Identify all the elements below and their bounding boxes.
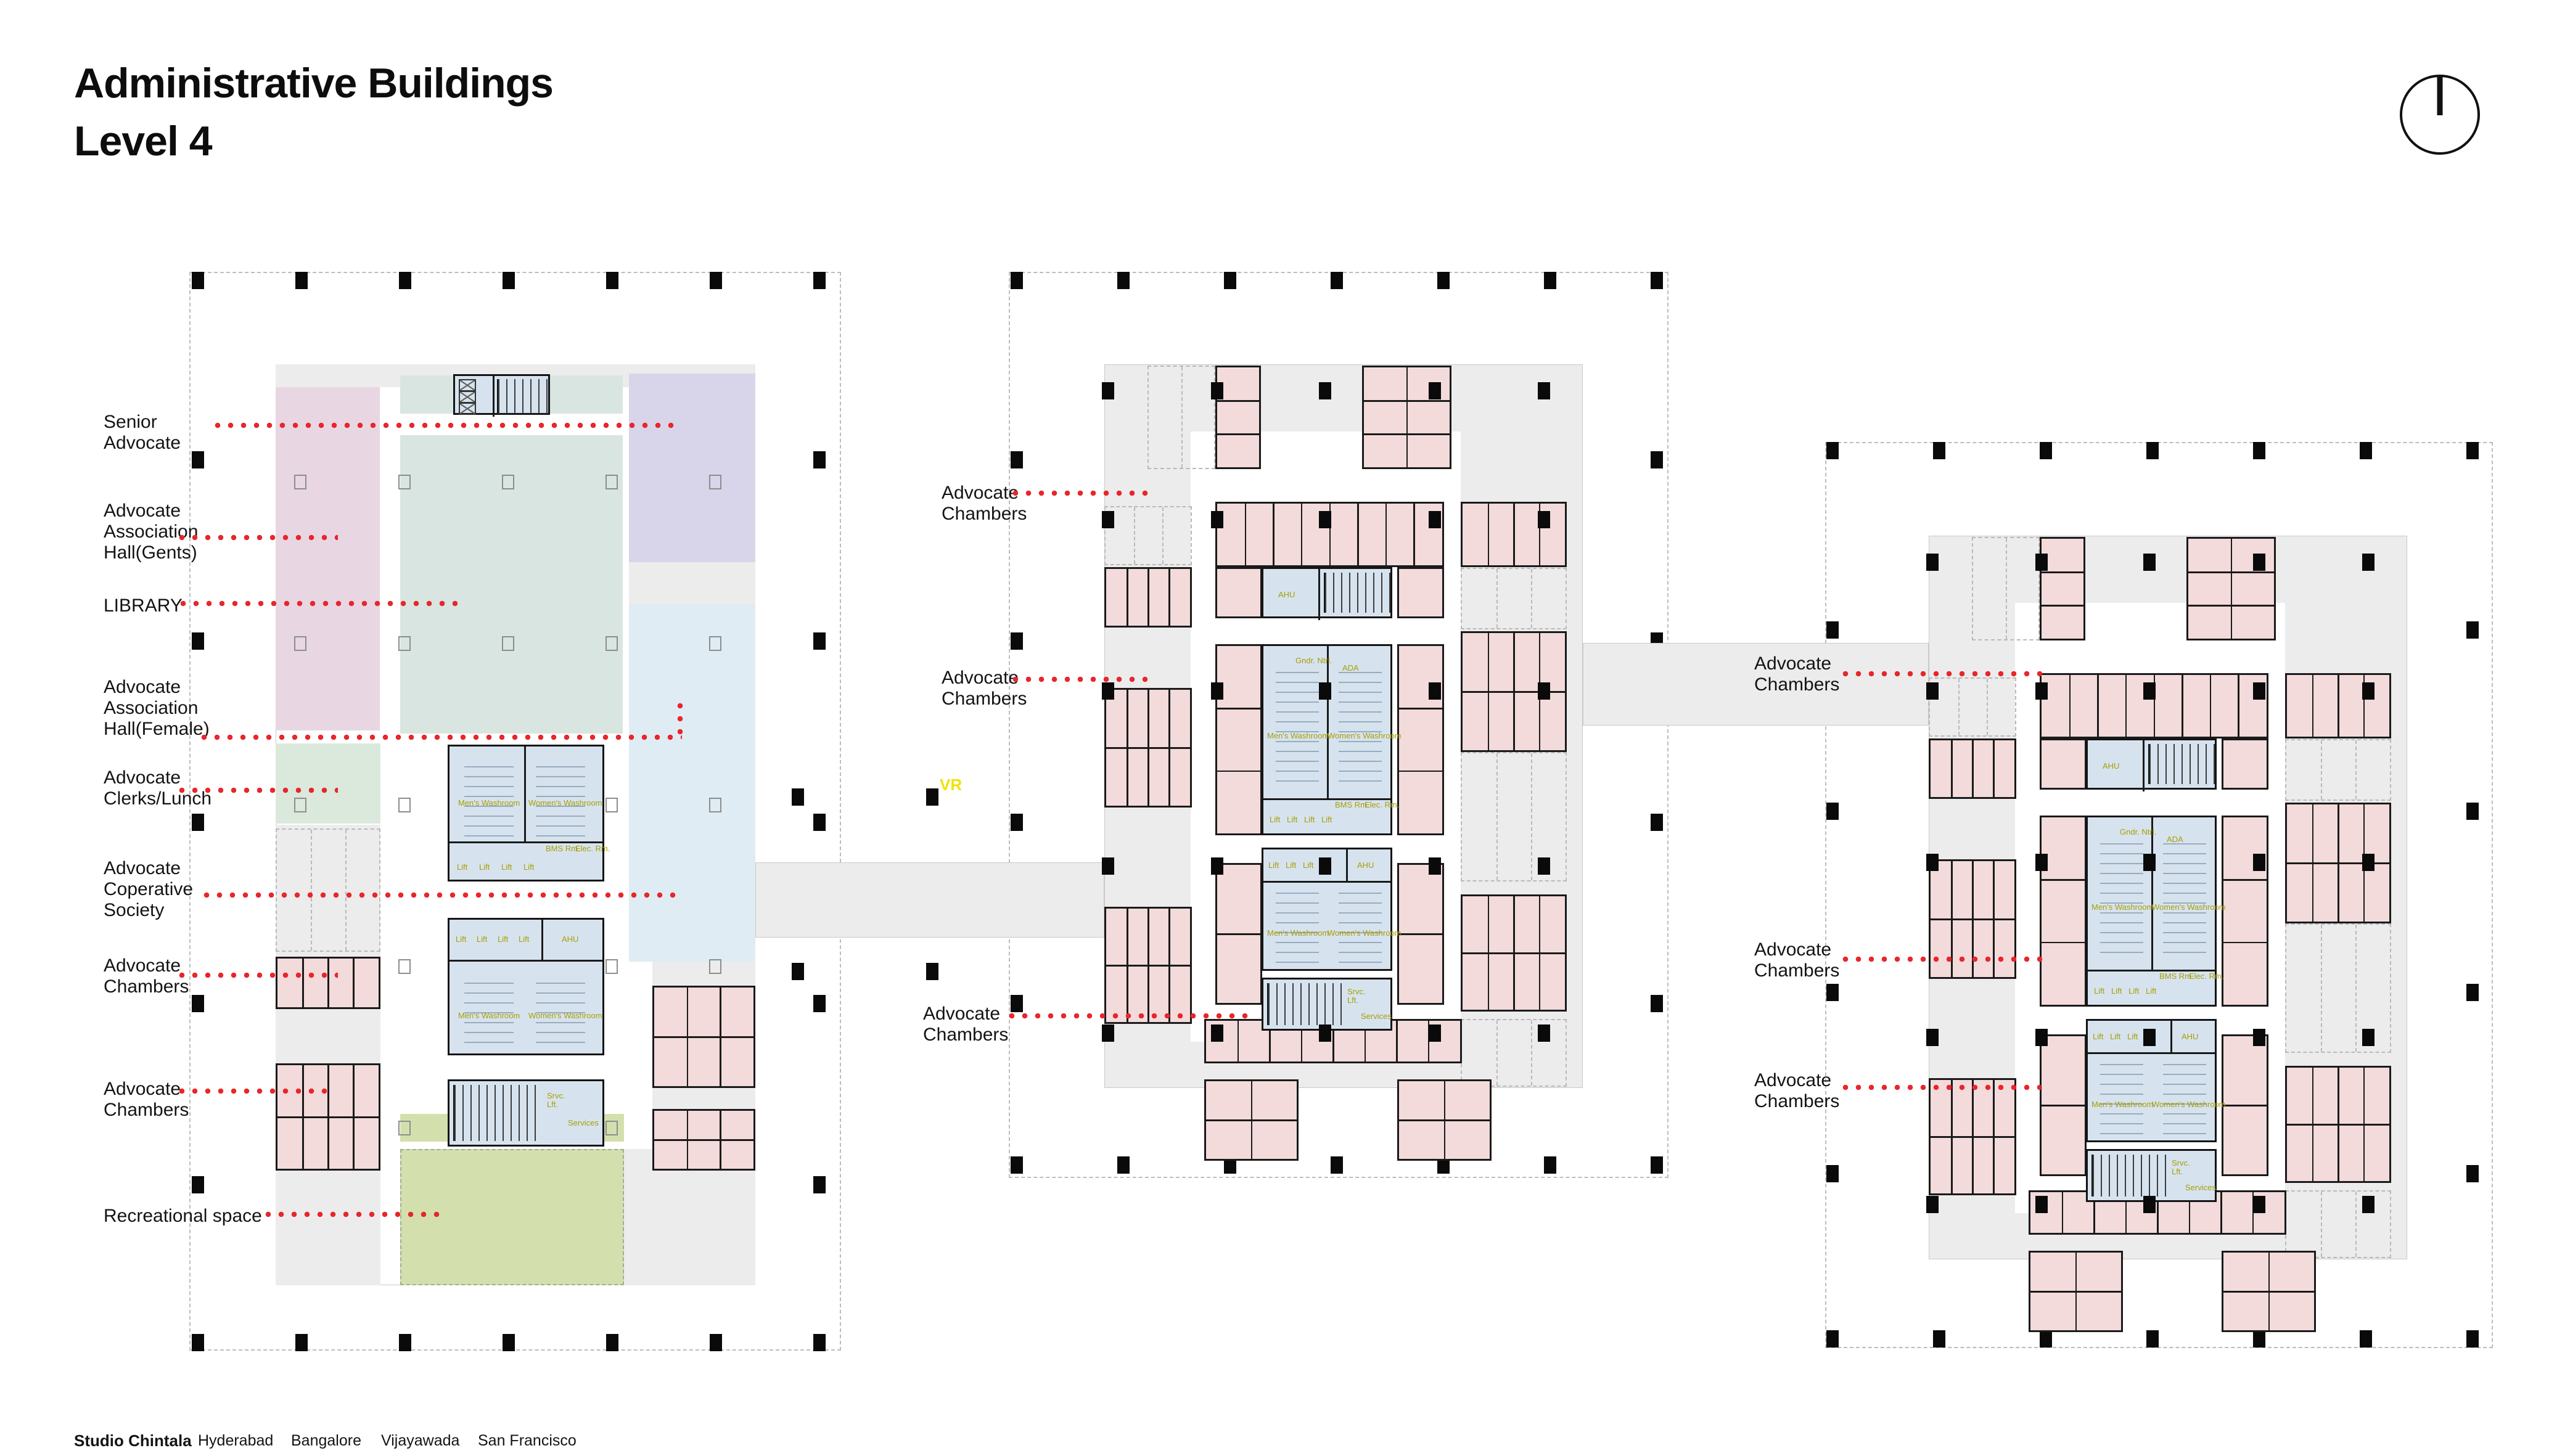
column-marker [1319, 857, 1331, 875]
parking-bay-line [311, 830, 312, 951]
core-divider [1346, 849, 1348, 881]
column-outline-marker [709, 798, 721, 812]
grid-line [2062, 1192, 2064, 1233]
parking-bay-line [2321, 925, 2322, 1052]
column-marker [606, 272, 618, 289]
core-room-label: AHU [1278, 591, 1295, 599]
column-outline-marker [398, 636, 411, 651]
column-marker [1319, 511, 1331, 528]
column-marker [1011, 451, 1023, 468]
stall-lines [464, 975, 514, 1043]
parking-bays [2285, 923, 2391, 1053]
parking-bay-line [1958, 679, 1960, 735]
core-divider [2088, 1052, 2215, 1054]
core-room-label: Men's Washroom [458, 1012, 520, 1020]
grid-line [2097, 675, 2099, 737]
stair-hatch [2091, 1155, 2167, 1196]
plan-label-line: Chambers [1754, 1091, 1839, 1112]
column-marker [813, 1334, 826, 1351]
leader-library [180, 600, 458, 607]
column-outline-marker [502, 475, 514, 489]
plan-label-line: Society [104, 900, 193, 921]
plan-label-recreational-space: Recreational space [104, 1206, 262, 1227]
core-room-label: AHU [562, 935, 578, 944]
column-marker [2146, 1330, 2159, 1348]
advocate-chambers-grid [1215, 366, 1261, 469]
grid-line [2338, 675, 2339, 737]
right-building-core-ahu-stair: AHU [2086, 738, 2217, 790]
column-marker [1651, 1156, 1663, 1174]
core-room-label: Lift [2093, 1033, 2103, 1041]
column-marker [503, 1334, 515, 1351]
parking-bay-line [2321, 740, 2322, 800]
core-room-label: Services [2185, 1184, 2216, 1192]
grid-line [2223, 942, 2267, 944]
parking-bay-line [1181, 367, 1183, 468]
plan-label-advocate-chambers-mid-3: AdvocateChambers [923, 1004, 1008, 1045]
advocate-chambers-grid [2285, 673, 2391, 738]
column-marker [1651, 814, 1663, 831]
column-marker [192, 1334, 204, 1351]
core-room-label: Lift [457, 863, 467, 872]
advocate-chambers-grid [1929, 1078, 2016, 1195]
stair-hatch [1267, 983, 1342, 1025]
grid-line [1413, 504, 1415, 565]
grid-line [1217, 400, 1259, 402]
column-marker [1102, 1025, 1114, 1042]
vr-marker: VR [940, 775, 962, 795]
column-outline-marker [605, 1121, 618, 1135]
column-outline-marker [605, 636, 618, 651]
column-marker [1011, 995, 1023, 1012]
advocate-chambers-grid [1397, 644, 1444, 835]
column-marker [2362, 554, 2375, 571]
column-marker [1429, 682, 1441, 700]
plan-label-line: Chambers [104, 976, 189, 997]
advocate-chambers-grid [2222, 816, 2268, 1007]
parking-bays [1929, 677, 2016, 737]
parking-bay-line [1134, 507, 1135, 564]
core-room-label: Lift [479, 863, 490, 872]
core-room-label: Srvc. [547, 1092, 565, 1100]
parking-bay-line [1496, 753, 1498, 880]
column-marker [1651, 272, 1663, 289]
grid-line [2223, 1105, 2267, 1106]
advocate-chambers-grid [1929, 738, 2016, 799]
column-marker [1011, 632, 1023, 650]
core-divider [524, 746, 526, 842]
core-room-label: Services [568, 1119, 599, 1127]
column-marker [1538, 1025, 1550, 1042]
core-room-label: Lift [1304, 816, 1315, 824]
left-slab-area [276, 1171, 380, 1285]
grid-line [1301, 504, 1303, 565]
column-marker [2253, 854, 2265, 871]
parking-bay-line [1496, 1020, 1498, 1086]
plan-label-association-hall-female: AdvocateAssociationHall(Female) [104, 677, 210, 740]
stair-hatch [1324, 573, 1390, 613]
core-room-label: Lft. [2172, 1168, 2183, 1176]
plan-label-advocate-chambers-mid-2: AdvocateChambers [942, 668, 1027, 710]
plan-label-line: LIBRARY [104, 595, 183, 616]
plan-label-line: Advocate [104, 677, 210, 698]
plan-label-line: Senior [104, 412, 181, 433]
grid-line [1106, 747, 1190, 749]
grid-line [2210, 675, 2212, 737]
grid-line [2069, 675, 2071, 737]
advocate-chambers-grid [2040, 816, 2087, 1007]
advocate-chambers-grid [652, 986, 755, 1088]
core-divider [2170, 1021, 2172, 1053]
column-marker [1102, 857, 1114, 875]
plan-label-line: Advocate [1754, 1070, 1839, 1091]
core-room-label: Services [1361, 1012, 1392, 1021]
column-marker [2253, 554, 2265, 571]
plan-label-library: LIBRARY [104, 595, 183, 616]
leader-vtick-association-hall-female [677, 703, 683, 735]
core-room-label: Lift [2111, 987, 2122, 996]
column-marker [1102, 382, 1114, 399]
grid-line [2188, 571, 2274, 573]
plan-label-line: Coperative [104, 879, 193, 900]
advocate-chambers-grid [2029, 1251, 2123, 1332]
plan-label-line: Advocate [104, 433, 181, 454]
plan-label-line: Advocate [104, 767, 211, 788]
grid-line [1931, 1136, 2014, 1138]
zone-senior-advocate [629, 374, 755, 562]
plan-label-line: Chambers [942, 689, 1027, 710]
core-room-label: Gndr. Ntrl. [2120, 828, 2156, 836]
advocate-chambers-grid [1215, 567, 1262, 618]
column-marker [2253, 442, 2265, 459]
core-room-label: Lift [498, 935, 508, 944]
grid-line [1488, 504, 1490, 565]
column-marker [2040, 442, 2052, 459]
leader-advocate-chambers-left-2 [179, 1088, 327, 1094]
column-marker [2362, 682, 2375, 700]
leader-advocate-chambers-right-2 [1842, 956, 2042, 962]
column-marker [2362, 1029, 2375, 1046]
column-marker [2466, 442, 2479, 459]
shaft-x-icon [459, 379, 476, 391]
parking-bay-line [1531, 753, 1532, 880]
column-marker [1926, 554, 1939, 571]
core-divider [449, 841, 602, 843]
column-outline-marker [398, 959, 411, 974]
column-outline-marker [294, 475, 306, 489]
column-marker [192, 451, 204, 468]
column-marker [2466, 803, 2479, 820]
advocate-chambers-grid [1104, 907, 1192, 1024]
parking-bay-line [2355, 925, 2357, 1052]
core-room-label: Lift [2110, 1033, 2120, 1041]
grid-line [1238, 1021, 1239, 1061]
plan-label-line: Association [104, 698, 210, 719]
column-outline-marker [398, 1121, 411, 1135]
column-marker [1826, 1330, 1839, 1348]
column-outline-marker [605, 959, 618, 974]
grid-line [2287, 1124, 2389, 1126]
plan-label-advocate-chambers-right-2: AdvocateChambers [1754, 939, 1839, 981]
leader-advocate-chambers-mid-3 [1009, 1013, 1252, 1019]
column-marker [2362, 1196, 2375, 1213]
plan-label-line: Advocate [104, 955, 189, 976]
parking-bay-line [345, 830, 347, 951]
plan-label-association-hall-gents: AdvocateAssociationHall(Gents) [104, 501, 198, 563]
left-core-washrooms-upper: Men's WashroomWomen's WashroomBMS Rm.Ele… [448, 745, 604, 881]
column-marker [192, 632, 204, 650]
column-marker [1211, 857, 1223, 875]
plan-label-line: Advocate [1754, 653, 1839, 674]
parking-bay-line [2006, 538, 2007, 639]
grid-line [1463, 952, 1565, 954]
column-marker [1102, 511, 1114, 528]
grid-line [2223, 879, 2267, 881]
plan-label-line: Hall(Female) [104, 719, 210, 740]
stall-lines [2163, 842, 2206, 953]
grid-line [654, 1139, 753, 1141]
plan-label-line: Chambers [1754, 960, 1839, 981]
grid-line [1513, 504, 1515, 565]
left-slab-area [276, 1009, 380, 1063]
parking-bay-line [1987, 679, 1988, 735]
column-marker [1933, 442, 1945, 459]
plan-label-advocate-chambers-right-3: AdvocateChambers [1754, 1070, 1839, 1112]
column-marker [926, 788, 938, 806]
grid-line [2220, 1192, 2222, 1233]
column-marker [813, 995, 826, 1012]
grid-line [1106, 965, 1190, 967]
footer-city-vijayawada: Vijayawada [381, 1432, 459, 1450]
leader-advocate-chambers-mid-2 [1012, 676, 1154, 682]
advocate-chambers-grid [1461, 502, 1567, 567]
plan-label-advocate-chambers-mid-1: AdvocateChambers [942, 483, 1027, 525]
advocate-chambers-grid [1461, 894, 1567, 1012]
grid-line [1127, 569, 1128, 626]
shaft-x-icon [459, 391, 476, 403]
column-marker [1429, 1025, 1441, 1042]
grid-line [302, 959, 304, 1007]
grid-line [2042, 942, 2085, 944]
column-marker [792, 963, 804, 980]
grid-line [2231, 539, 2233, 639]
core-room-label: Lift [1303, 861, 1313, 870]
core-room-label: Lift [501, 863, 512, 872]
stall-lines [1276, 671, 1319, 782]
middle-building-core-ahu-stair: AHU [1262, 567, 1392, 618]
zone-advocate-clerks-lunch [276, 743, 380, 824]
column-marker [2360, 1330, 2372, 1348]
core-room-label: Lift [2146, 987, 2156, 996]
column-marker [813, 632, 826, 650]
leader-senior-advocate [215, 422, 678, 428]
grid-line [1951, 740, 1953, 797]
column-marker [1429, 382, 1441, 399]
column-marker [2253, 1029, 2265, 1046]
column-marker [1102, 682, 1114, 700]
shaft-x-icon [459, 403, 476, 415]
grid-line [1406, 367, 1408, 467]
column-marker [1826, 803, 1839, 820]
column-marker [813, 814, 826, 831]
stair-hatch [2148, 744, 2215, 784]
advocate-chambers-grid [1204, 1079, 1299, 1161]
stair-hatch [497, 379, 550, 414]
grid-line [277, 1116, 379, 1118]
grid-line [1931, 918, 2014, 920]
core-divider [541, 920, 543, 960]
grid-line [1399, 708, 1442, 710]
column-marker [1429, 857, 1441, 875]
leader-advocate-clerks-lunch [179, 787, 338, 793]
column-marker [2035, 854, 2048, 871]
grid-line [654, 1036, 753, 1038]
grid-line [2312, 675, 2314, 737]
stall-lines [2163, 1060, 2206, 1134]
grid-line [2188, 605, 2274, 607]
grid-line [1993, 740, 1995, 797]
core-room-label: Lift [1286, 861, 1296, 870]
advocate-chambers-grid [2285, 803, 2391, 923]
column-marker [503, 272, 515, 289]
plan-label-line: Advocate [104, 1079, 189, 1100]
core-room-label: Srvc. [2172, 1159, 2190, 1168]
column-marker [2035, 1029, 2048, 1046]
advocate-chambers-grid [652, 1109, 755, 1171]
core-room-label: Lift [1287, 816, 1297, 824]
grid-line [2030, 1291, 2121, 1293]
leader-advocate-chambers-mid-1 [1012, 490, 1154, 496]
column-marker [1011, 1156, 1023, 1174]
core-room-label: Lift [2127, 1033, 2138, 1041]
stall-lines [536, 975, 585, 1043]
core-room-label: AHU [2182, 1033, 2198, 1041]
column-marker [1926, 854, 1939, 871]
column-marker [1211, 382, 1223, 399]
column-marker [792, 788, 804, 806]
core-room-label: ADA [1342, 664, 1359, 673]
column-marker [2466, 1330, 2479, 1348]
floor-plan-canvas: Men's WashroomWomen's WashroomBMS Rm.Ele… [0, 0, 2549, 1456]
grid-line [1217, 771, 1260, 772]
column-marker [1926, 682, 1939, 700]
core-room-label: Lft. [547, 1100, 558, 1109]
column-marker [295, 1334, 308, 1351]
left-core-stair-services: Srvc.Lft.Services [448, 1079, 604, 1147]
footer-city-hyderabad: Hyderabad [198, 1432, 273, 1450]
parking-bay-line [2321, 1192, 2322, 1257]
advocate-chambers-grid [1215, 644, 1262, 835]
stall-lines [2100, 842, 2143, 953]
column-marker [2253, 1330, 2265, 1348]
grid-line [2238, 675, 2239, 737]
core-room-label: ADA [2167, 835, 2183, 844]
advocate-chambers-grid [1461, 631, 1567, 752]
column-outline-marker [398, 798, 411, 812]
plan-label-line: Advocate [104, 858, 193, 879]
advocate-chambers-grid [1362, 366, 1451, 469]
plan-label-line: Chambers [104, 1100, 189, 1121]
stall-lines [1276, 889, 1319, 963]
column-marker [2146, 442, 2159, 459]
parking-bays [1104, 506, 1192, 565]
right-building-core-washrooms: Gndr. Ntrl.ADAMen's WashroomWomen's Wash… [2086, 816, 2217, 1007]
grid-line [327, 959, 329, 1007]
stall-lines [1339, 889, 1382, 963]
core-divider [2151, 817, 2153, 970]
core-room-label: Elec. Rm. [1365, 801, 1399, 809]
column-marker [2466, 984, 2479, 1001]
grid-line [2042, 1105, 2085, 1106]
footer: Studio Chintala HyderabadBangaloreVijaya… [0, 1431, 2549, 1456]
leader-association-hall-gents [179, 534, 338, 541]
column-marker [2143, 1029, 2156, 1046]
core-room-label: Men's Washroom [2091, 903, 2153, 912]
advocate-chambers-grid [1104, 567, 1192, 628]
core-divider [2143, 740, 2145, 791]
core-room-label: Gndr. Ntrl. [1295, 656, 1332, 665]
advocate-chambers-grid [2040, 537, 2085, 640]
column-marker [1544, 1156, 1556, 1174]
plan-label-advocate-chambers-right-1: AdvocateChambers [1754, 653, 1839, 695]
core-room-label: Men's Washroom [458, 799, 520, 808]
advocate-chambers-grid [1104, 688, 1192, 808]
footer-city-bangalore: Bangalore [291, 1432, 361, 1450]
column-marker [2360, 442, 2372, 459]
core-room-label: Lift [523, 863, 534, 872]
advocate-chambers-grid [2222, 1034, 2268, 1176]
column-outline-marker [294, 636, 306, 651]
advocate-chambers-grid [276, 957, 380, 1009]
core-room-label: Lift [1270, 816, 1280, 824]
plan-label-line: Hall(Gents) [104, 542, 198, 563]
core-room-label: Women's Washroom [1328, 732, 1402, 740]
parking-bays [276, 828, 380, 952]
zone-association-hall-gents [276, 387, 380, 730]
column-marker [2143, 854, 2156, 871]
parking-bays [1147, 366, 1215, 469]
core-divider [1318, 569, 1320, 620]
column-marker [1117, 272, 1130, 289]
core-room-label: Lift [2128, 987, 2139, 996]
column-outline-marker [398, 475, 411, 489]
column-marker [2035, 682, 2048, 700]
core-room-label: Men's Washroom [2091, 1100, 2153, 1109]
column-marker [192, 1176, 204, 1193]
core-divider [1327, 646, 1329, 799]
core-room-label: Lift [519, 935, 529, 944]
column-outline-marker [502, 636, 514, 651]
column-marker [1319, 1025, 1331, 1042]
column-marker [1319, 682, 1331, 700]
grid-line [1385, 504, 1387, 565]
leader-advocate-chambers-left-1 [179, 972, 338, 978]
column-marker [813, 1176, 826, 1193]
core-room-label: Srvc. [1347, 988, 1366, 996]
grid-line [2125, 675, 2127, 737]
parking-bays [1461, 568, 1567, 629]
plan-label-advocate-chambers-left-1: AdvocateChambers [104, 955, 189, 997]
grid-line [1217, 933, 1260, 935]
column-marker [813, 272, 826, 289]
grid-line [1217, 708, 1260, 710]
column-marker [1826, 442, 1839, 459]
column-marker [1544, 272, 1556, 289]
plan-label-line: Advocate [1754, 939, 1839, 960]
left-core-lifts-ahu: LiftLiftLiftLiftAHUMen's WashroomWomen's… [448, 918, 604, 1055]
grid-line [1147, 569, 1149, 626]
core-divider [449, 960, 602, 962]
